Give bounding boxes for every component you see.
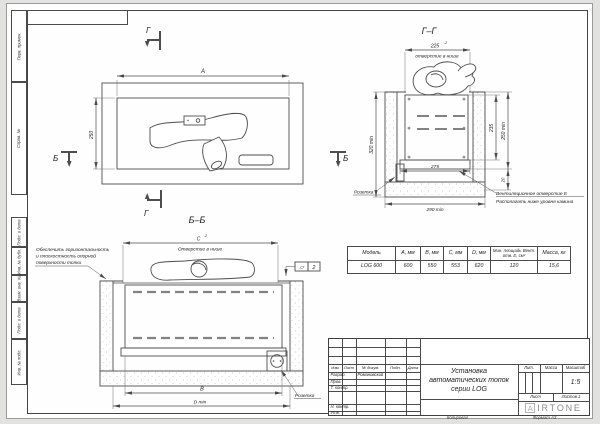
level-note-line1: Обеспечить горизонтальность bbox=[36, 247, 110, 253]
section-mark-g-top: Г bbox=[146, 26, 151, 35]
change-col-podp: Подп. bbox=[385, 364, 406, 372]
title-block: Изм. Лист № докум. Подп. Дата Разраб. Ро… bbox=[328, 338, 590, 416]
airtone-logo: A IRTONE bbox=[518, 401, 589, 415]
section-bb-view: Б–Б С -2 Отверстие в нише bbox=[35, 215, 321, 409]
vent-slots-gg bbox=[417, 116, 465, 129]
mass-label: Масса bbox=[540, 364, 562, 372]
dim-320-label: 320 min bbox=[369, 136, 375, 154]
dim-275-label: 275 bbox=[430, 164, 439, 170]
dim-opening-bb: С bbox=[197, 237, 201, 243]
role-utv: Утв. bbox=[329, 411, 358, 415]
vent-note-line2: Располагать ниже уровня камина bbox=[496, 199, 574, 205]
spec-table-data-row: LOG 600 600 550 553 620 120 15,6 bbox=[348, 261, 571, 274]
spec-header-d: D, мм bbox=[468, 247, 491, 261]
opening-note-gg: отверстие в нише bbox=[415, 55, 459, 60]
dim-b-label: В bbox=[200, 387, 204, 393]
flatness-symbol: ▱ bbox=[299, 265, 305, 271]
spec-value-vent-area: 120 bbox=[491, 261, 538, 274]
spec-header-c: С, мм bbox=[444, 247, 468, 261]
section-mark-b-left: Б bbox=[53, 154, 58, 163]
spec-header-model: Модель bbox=[348, 247, 396, 261]
view-bb-title: Б–Б bbox=[189, 215, 206, 225]
spec-table: Модель А, мм В, мм С, мм D, мм Мин. площ… bbox=[347, 246, 571, 274]
spec-value-d: 620 bbox=[468, 261, 491, 274]
firebox-body bbox=[405, 95, 468, 160]
section-mark-g-bottom: Г bbox=[144, 209, 149, 218]
level-note-line2: и плоскостность опорной bbox=[36, 253, 96, 260]
socket-bb bbox=[267, 351, 287, 371]
dim-dmin-label: D min bbox=[194, 400, 207, 406]
section-mark-b-right: Б bbox=[343, 154, 348, 163]
spec-value-mass: 15,6 bbox=[538, 261, 571, 274]
dim-235-label: 235 bbox=[489, 124, 495, 134]
dim-opening-bb-tol: -2 bbox=[204, 234, 207, 238]
document-title-line3: серии LOG bbox=[451, 386, 487, 395]
copied-label: Копировал bbox=[425, 414, 490, 420]
airtone-logo-text: IRTONE bbox=[537, 403, 581, 413]
spec-value-b: 550 bbox=[421, 261, 444, 274]
niche-wall-left-bb bbox=[100, 281, 113, 371]
spec-header-mass: Масса, кг bbox=[538, 247, 571, 261]
role-tkontr: Т. контр. bbox=[329, 385, 358, 391]
dim-290min-label: 290 min bbox=[425, 207, 443, 213]
change-col-izm: Изм. bbox=[329, 364, 342, 372]
opening-note-bb: Отверстие в нише bbox=[178, 247, 223, 253]
vent-note-line1: Вентиляционное отверстие Е bbox=[496, 191, 568, 197]
spec-value-c: 553 bbox=[444, 261, 468, 274]
socket-label-gg: Розетка bbox=[354, 190, 374, 196]
drawing-page: Перв. примен. Справ. № Подп. и дата Инв.… bbox=[0, 0, 600, 424]
dim-opening-gg-tol: -2 bbox=[444, 41, 447, 45]
spec-table-header-row: Модель А, мм В, мм С, мм D, мм Мин. площ… bbox=[348, 247, 571, 261]
role-razrab: Разраб. bbox=[329, 372, 358, 379]
dim-opening-gg: 225 bbox=[430, 44, 440, 50]
level-note-line3: поверхности топки bbox=[36, 261, 81, 266]
airtone-logo-a-mark: A bbox=[525, 403, 535, 413]
format-label: Формат А3 bbox=[512, 414, 577, 420]
dim-20-label: 20 bbox=[501, 177, 506, 183]
dim-250-label: 250 bbox=[89, 131, 95, 141]
scale-value: 1:5 bbox=[562, 372, 589, 393]
change-col-list: Лист bbox=[342, 364, 356, 372]
view-gg-title: Г–Г bbox=[422, 26, 438, 36]
dim-a-label: А bbox=[200, 69, 205, 75]
role-nkontr: Н. контр. bbox=[329, 404, 358, 411]
section-gg-view: Г–Г 225 -2 отверстие в нише bbox=[353, 26, 584, 213]
change-col-data: Дата bbox=[406, 364, 420, 372]
burner-plate bbox=[184, 116, 205, 125]
document-title: Установка автоматических топок серии LOG bbox=[420, 364, 518, 399]
spec-value-model: LOG 600 bbox=[348, 261, 396, 274]
spec-value-a: 600 bbox=[396, 261, 421, 274]
sheet-label: Лист bbox=[518, 393, 553, 401]
control-tray bbox=[239, 155, 273, 165]
niche-wall-left bbox=[385, 92, 397, 182]
niche-wall-right bbox=[473, 92, 485, 182]
socket-label-bb: Розетка bbox=[295, 393, 315, 399]
developer-name: Романовский bbox=[356, 372, 387, 379]
dim-250min-label: 250 min bbox=[501, 122, 507, 141]
spec-header-a: А, мм bbox=[396, 247, 421, 261]
lit-label: Лит. bbox=[518, 364, 540, 372]
spec-header-vent-area: Мин. площадь Вент. отв. Е, см² bbox=[491, 247, 538, 261]
niche-wall-right-bb bbox=[290, 281, 303, 371]
flatness-value: 2 bbox=[312, 265, 316, 271]
niche-floor bbox=[385, 182, 485, 197]
scale-label: Масштаб bbox=[562, 364, 589, 372]
change-col-docnum: № докум. bbox=[356, 364, 385, 372]
spec-header-b: В, мм bbox=[421, 247, 444, 261]
niche-floor-bb bbox=[100, 371, 303, 386]
document-title-line2: автоматических топок bbox=[429, 377, 509, 386]
firebox-base-bb bbox=[121, 348, 286, 356]
document-title-line1: Установка bbox=[451, 368, 487, 377]
plan-view: А 250 Г Г Б Б bbox=[53, 26, 348, 218]
sheets-value: Листов 1 bbox=[553, 393, 589, 401]
decor-log-branch bbox=[203, 137, 227, 171]
